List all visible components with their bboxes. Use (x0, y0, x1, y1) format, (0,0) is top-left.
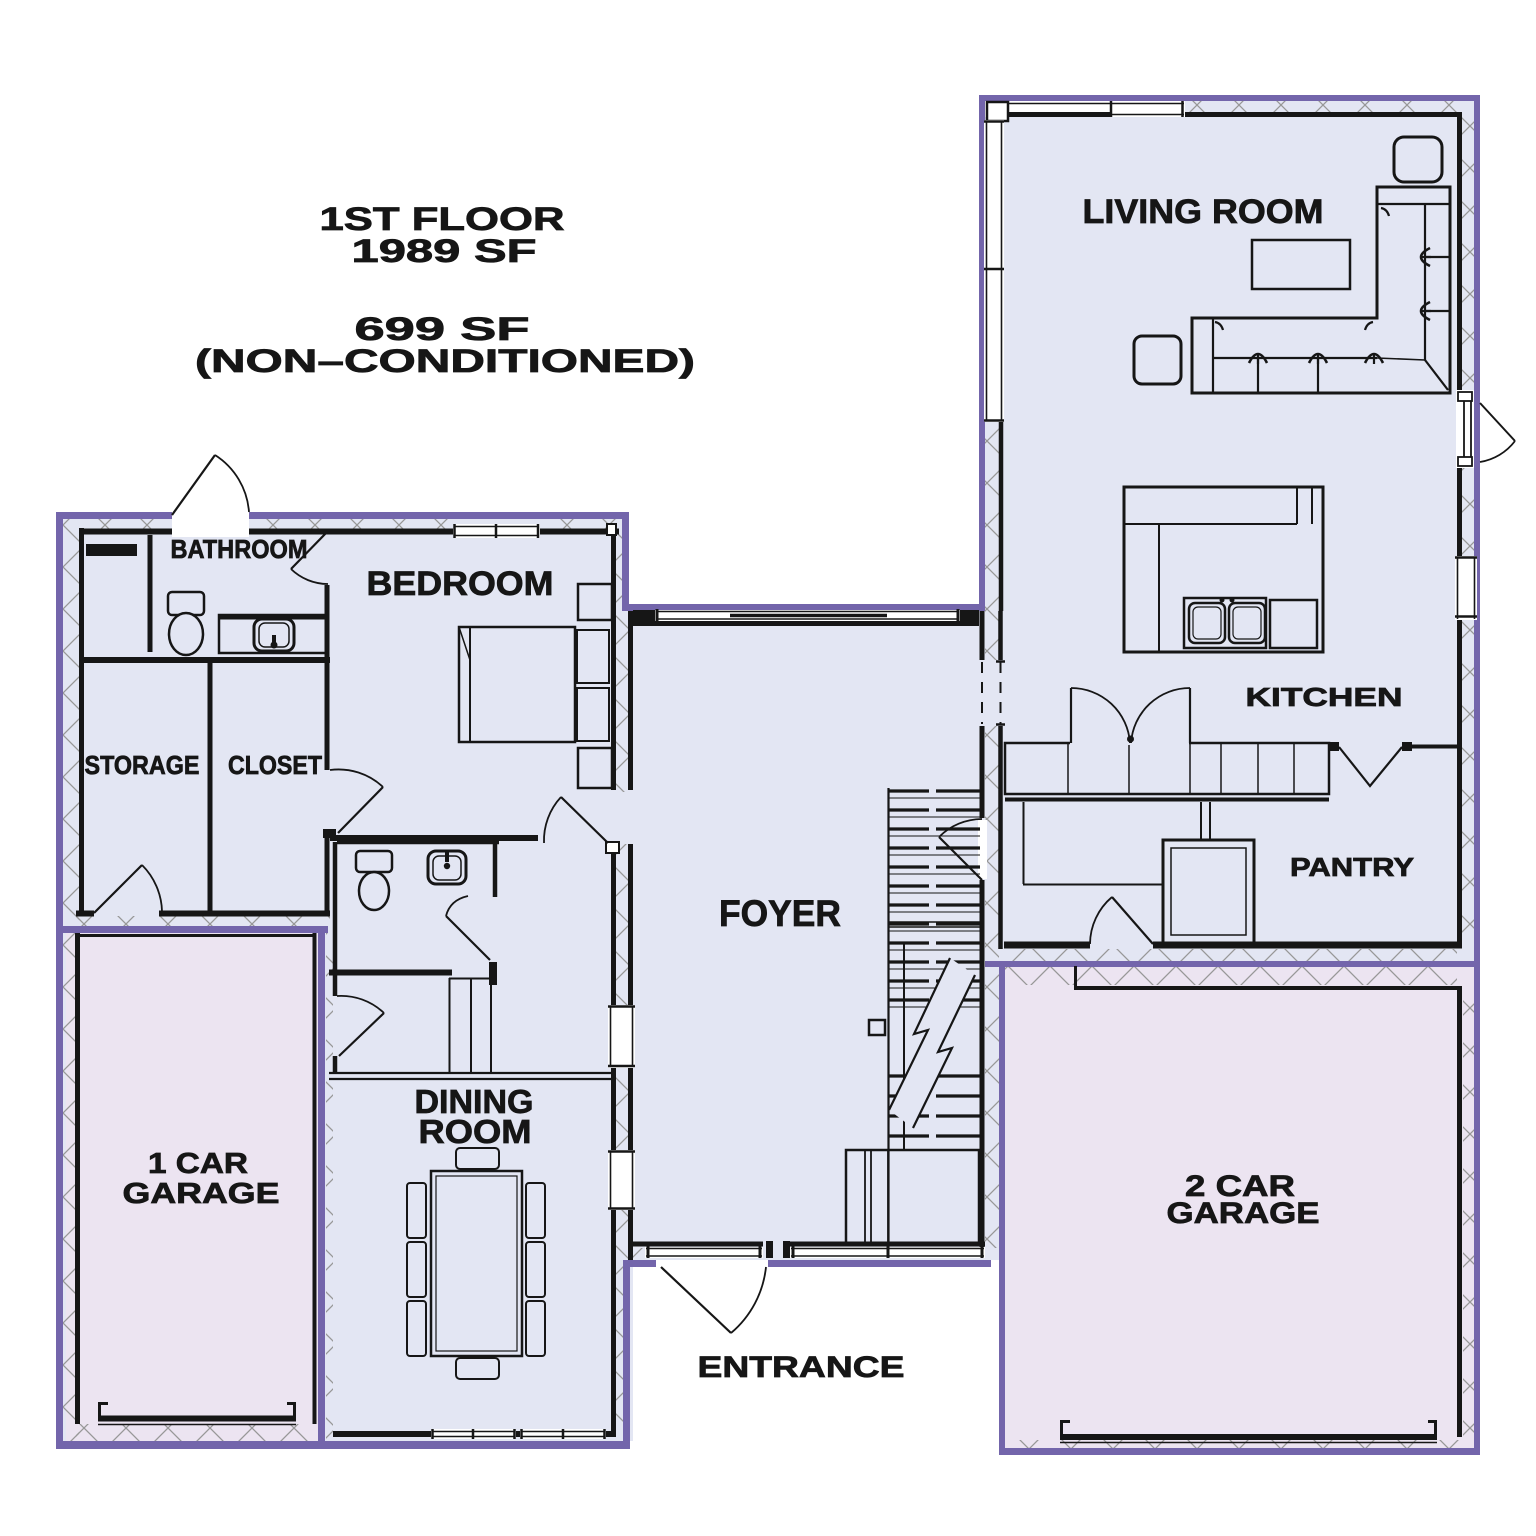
svg-text:1 CAR: 1 CAR (148, 1148, 248, 1180)
svg-text:BATHROOM: BATHROOM (171, 534, 308, 564)
svg-text:BEDROOM: BEDROOM (367, 565, 554, 603)
svg-text:GARAGE: GARAGE (1167, 1197, 1320, 1230)
svg-text:ROOM: ROOM (419, 1113, 532, 1150)
svg-text:699 SF: 699 SF (355, 311, 530, 347)
svg-text:CLOSET: CLOSET (228, 750, 322, 780)
svg-text:FOYER: FOYER (719, 893, 841, 934)
svg-text:GARAGE: GARAGE (123, 1178, 280, 1210)
svg-text:1989 SF: 1989 SF (352, 233, 537, 269)
svg-text:ENTRANCE: ENTRANCE (698, 1351, 905, 1384)
svg-text:1ST FLOOR: 1ST FLOOR (320, 201, 565, 237)
svg-text:PANTRY: PANTRY (1290, 852, 1414, 882)
svg-text:LIVING ROOM: LIVING ROOM (1083, 193, 1324, 231)
svg-text:STORAGE: STORAGE (85, 750, 200, 780)
svg-text:KITCHEN: KITCHEN (1246, 682, 1403, 712)
svg-text:(NON–CONDITIONED): (NON–CONDITIONED) (195, 343, 695, 379)
